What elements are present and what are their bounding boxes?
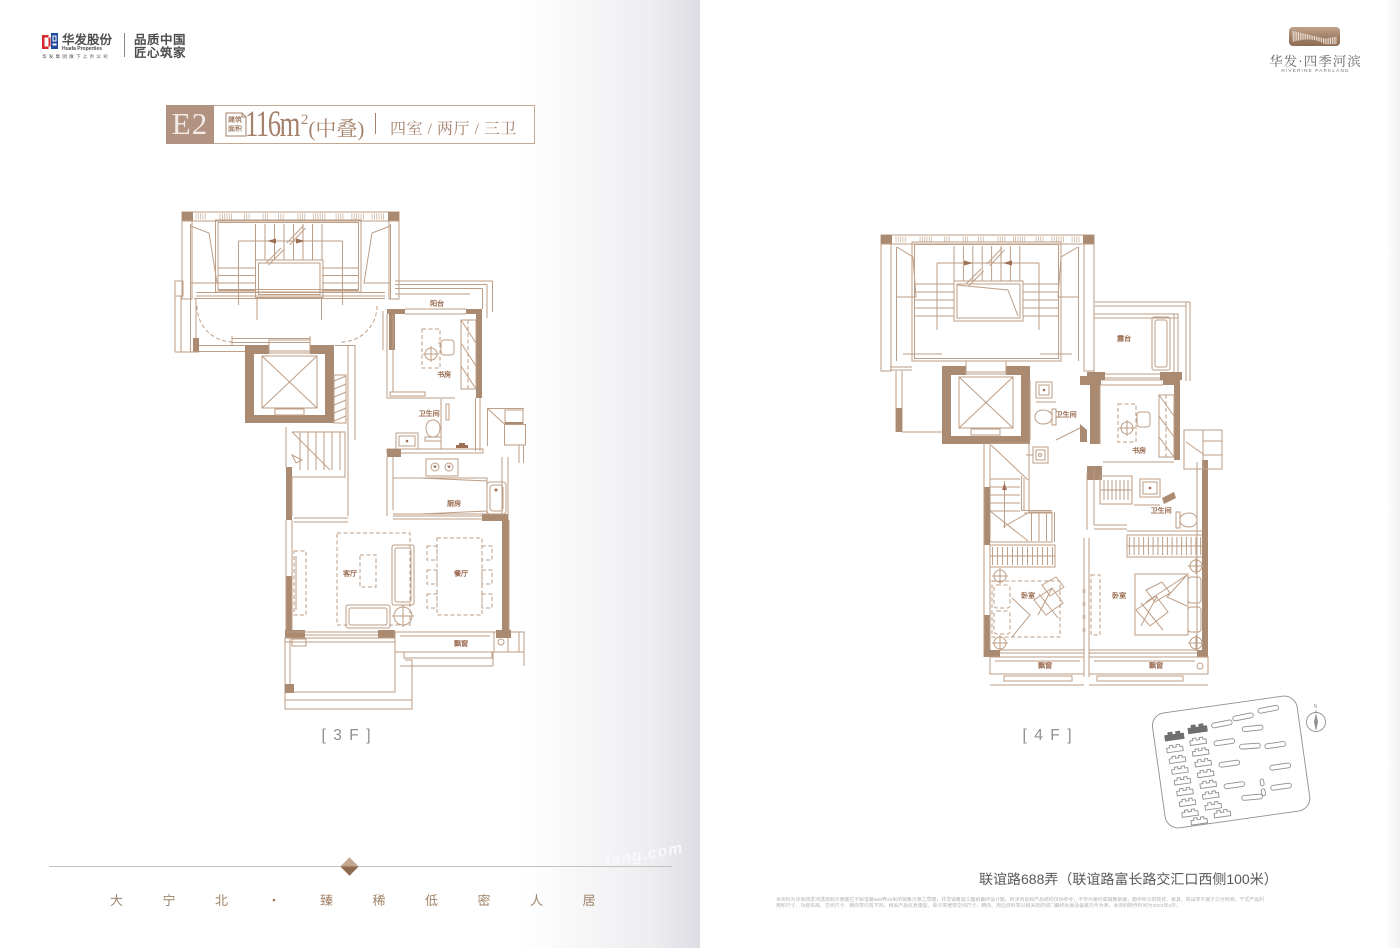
svg-text:书房: 书房 xyxy=(437,370,451,380)
svg-text:飘窗: 飘窗 xyxy=(1149,661,1163,671)
svg-text:飘窗: 飘窗 xyxy=(1038,661,1052,671)
svg-text:卧室: 卧室 xyxy=(1112,591,1126,601)
svg-text:[ 3 F ]: [ 3 F ] xyxy=(321,723,372,745)
svg-text:露台: 露台 xyxy=(1117,334,1131,344)
svg-text:[ 4 F ]: [ 4 F ] xyxy=(1022,723,1073,745)
svg-text:卧室: 卧室 xyxy=(1021,591,1035,601)
svg-text:厨房: 厨房 xyxy=(447,499,461,509)
svg-text:阳台: 阳台 xyxy=(430,299,444,309)
svg-text:卫生间: 卫生间 xyxy=(419,409,440,419)
svg-text:餐厅: 餐厅 xyxy=(453,569,468,579)
svg-text:卫生间: 卫生间 xyxy=(1056,410,1077,420)
svg-text:书房: 书房 xyxy=(1132,446,1146,456)
svg-text:客厅: 客厅 xyxy=(342,569,357,579)
svg-text:卫生间: 卫生间 xyxy=(1151,506,1172,516)
svg-text:飘窗: 飘窗 xyxy=(454,639,468,649)
svg-text:N: N xyxy=(1314,702,1318,710)
